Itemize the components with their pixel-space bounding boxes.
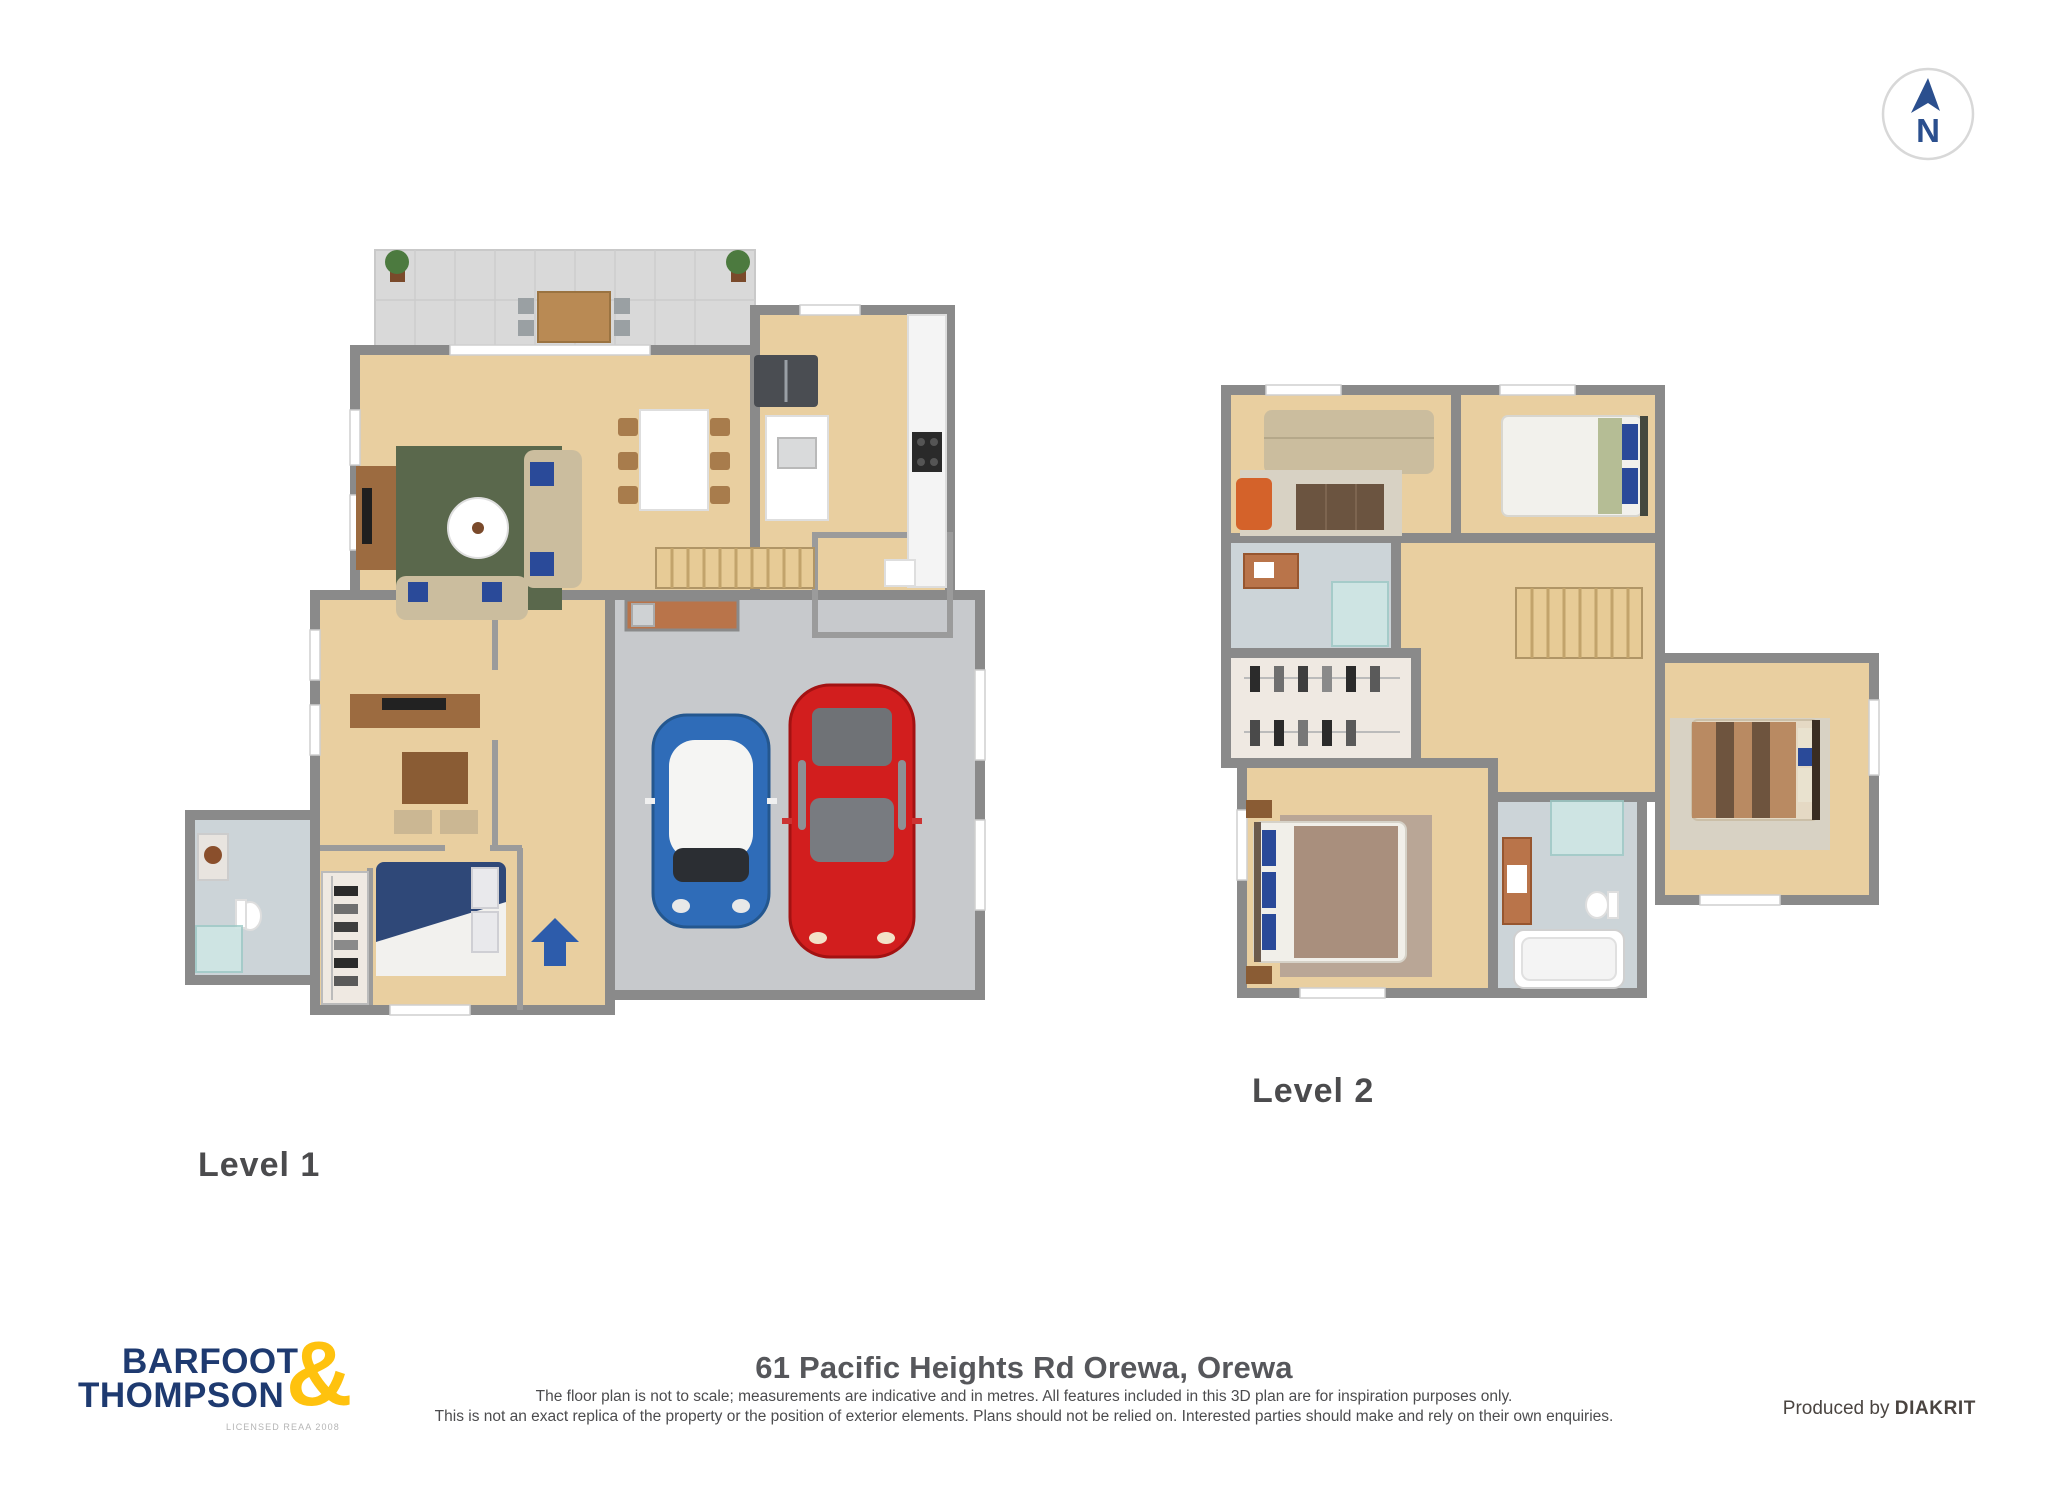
level-2-label: Level 2 [1252,1072,1374,1111]
level-1-label: Level 1 [198,1146,320,1185]
nightstand [1246,966,1272,984]
tv-icon [362,488,372,544]
sink [778,438,816,468]
bedroom2-furniture [1502,416,1648,516]
stairs [656,548,814,588]
floorplan-page: N [0,0,2048,1494]
powder-basin [885,560,915,586]
disclaimer-line-1: The floor plan is not to scale; measurem… [0,1388,2048,1406]
producer-name: DIAKRIT [1895,1398,1976,1419]
wardrobe [322,872,368,1004]
stairs [1516,588,1642,658]
disclaimer-line-2: This is not an exact replica of the prop… [0,1408,2048,1426]
dining-furniture [618,410,730,510]
compass-graphic: N [1880,66,1976,162]
produced-by: Produced by DIAKRIT [1783,1398,1976,1420]
chair [440,810,478,834]
accent-chair [1236,478,1272,530]
sofa [1264,410,1434,474]
car-red [782,685,922,957]
floorplan-level-2 [1200,360,1920,1120]
cooktop [912,432,942,472]
compass: N [1880,66,1976,162]
chair [394,810,432,834]
bedroom3-furniture [1670,718,1830,850]
shower [1551,801,1623,855]
shower [1332,582,1388,646]
toilet [1586,892,1608,918]
workbench [626,600,738,630]
coffee-table [1296,484,1384,530]
floorplan-level-1 [150,200,1050,1180]
study-table [402,752,468,804]
bedroom-furniture [376,862,506,976]
compass-letter: N [1916,112,1940,149]
master-furniture [1246,800,1432,984]
towel [204,846,222,864]
car-blue [645,715,777,927]
nightstand [1246,800,1272,818]
shower [196,926,242,972]
patio [375,250,755,350]
produced-by-label: Produced by [1783,1398,1890,1419]
dining-table [640,410,708,510]
property-title: 61 Pacific Heights Rd Orewa, Orewa [0,1350,2048,1386]
